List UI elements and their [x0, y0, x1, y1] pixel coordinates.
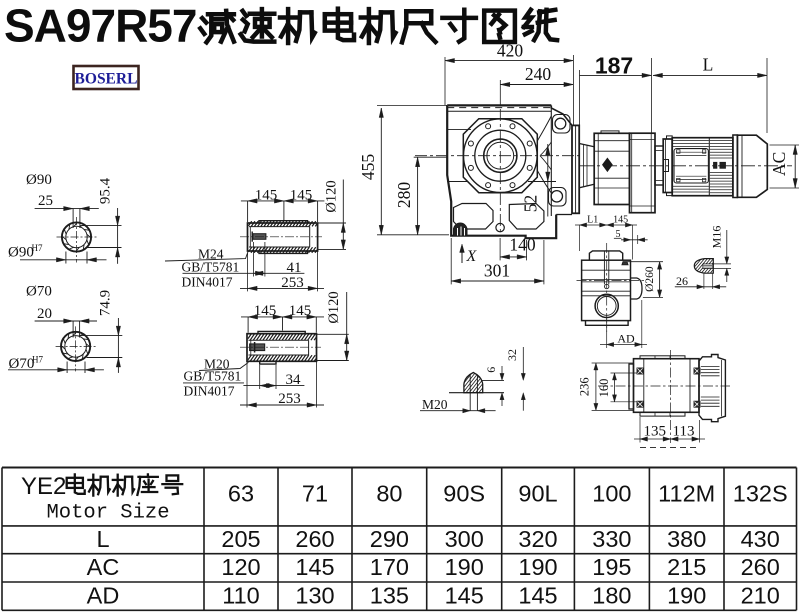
svg-text:63: 63 [228, 481, 254, 507]
svg-text:Ø120: Ø120 [326, 291, 342, 323]
svg-text:215: 215 [667, 554, 706, 580]
svg-text:95.4: 95.4 [98, 177, 114, 204]
svg-text:280: 280 [394, 182, 414, 209]
svg-text:330: 330 [592, 526, 631, 552]
svg-text:L1: L1 [587, 214, 598, 225]
svg-text:300: 300 [445, 526, 484, 552]
svg-text:32: 32 [505, 349, 519, 361]
svg-text:190: 190 [518, 554, 557, 580]
svg-text:320: 320 [518, 526, 557, 552]
svg-text:90L: 90L [518, 481, 557, 507]
svg-text:160: 160 [597, 379, 611, 398]
svg-text:420: 420 [497, 41, 524, 61]
svg-text:80: 80 [376, 481, 402, 507]
svg-text:195: 195 [592, 554, 631, 580]
svg-text:113: 113 [673, 423, 695, 439]
svg-text:455: 455 [358, 154, 378, 181]
svg-text:140: 140 [509, 235, 536, 255]
svg-text:6: 6 [484, 367, 498, 373]
svg-text:26: 26 [676, 274, 688, 288]
svg-text:M16: M16 [710, 226, 724, 249]
svg-text:AC: AC [87, 554, 120, 580]
svg-text:DIN4017: DIN4017 [182, 274, 233, 289]
svg-text:380: 380 [667, 526, 706, 552]
svg-text:253: 253 [278, 391, 301, 407]
svg-text:Ø70: Ø70 [26, 284, 52, 300]
svg-text:187: 187 [595, 53, 633, 79]
svg-text:170: 170 [370, 554, 409, 580]
svg-text:120: 120 [221, 554, 260, 580]
svg-text:AD: AD [617, 332, 635, 346]
svg-text:260: 260 [295, 526, 334, 552]
svg-text:190: 190 [667, 583, 706, 609]
svg-text:90S: 90S [443, 481, 485, 507]
svg-text:145: 145 [518, 583, 557, 609]
svg-text:X: X [466, 248, 478, 265]
svg-text:L: L [96, 526, 109, 552]
svg-text:430: 430 [741, 526, 780, 552]
svg-text:H7: H7 [32, 355, 43, 365]
svg-text:M20: M20 [422, 397, 448, 412]
svg-text:Ø90: Ø90 [26, 172, 52, 188]
svg-text:112M: 112M [658, 481, 715, 507]
svg-text:210: 210 [741, 583, 780, 609]
svg-text:240: 240 [525, 64, 552, 84]
svg-text:130: 130 [295, 583, 334, 609]
svg-text:135: 135 [370, 583, 409, 609]
svg-text:41: 41 [287, 260, 302, 276]
svg-text:H7: H7 [32, 243, 43, 253]
svg-text:BOSERL: BOSERL [75, 71, 138, 88]
svg-text:253: 253 [281, 275, 304, 291]
svg-text:Ø90: Ø90 [8, 245, 34, 261]
svg-text:Ø260: Ø260 [644, 266, 656, 292]
svg-text:301: 301 [484, 260, 510, 280]
svg-text:100: 100 [592, 481, 631, 507]
svg-text:L: L [703, 55, 714, 75]
svg-text:110: 110 [222, 583, 259, 609]
svg-text:52: 52 [521, 195, 541, 213]
svg-text:34: 34 [286, 372, 302, 388]
svg-text:236: 236 [578, 377, 592, 396]
svg-text:205: 205 [221, 526, 260, 552]
svg-text:Motor Size: Motor Size [46, 502, 169, 525]
svg-text:20: 20 [37, 306, 52, 322]
svg-text:AC: AC [769, 152, 789, 176]
svg-text:25: 25 [38, 193, 53, 209]
svg-text:145: 145 [445, 583, 484, 609]
svg-text:AD: AD [87, 583, 120, 609]
svg-text:190: 190 [445, 554, 484, 580]
svg-text:SA97R57: SA97R57 [4, 0, 196, 52]
svg-text:GB/T5781: GB/T5781 [182, 259, 240, 274]
svg-text:Ø120: Ø120 [323, 180, 339, 212]
svg-text:290: 290 [370, 526, 409, 552]
svg-text:145: 145 [295, 554, 334, 580]
svg-text:260: 260 [741, 554, 780, 580]
svg-text:YE2: YE2 [21, 473, 66, 500]
svg-text:DIN4017: DIN4017 [184, 383, 235, 398]
svg-text:132S: 132S [733, 481, 788, 507]
svg-text:GB/T5781: GB/T5781 [184, 369, 242, 384]
svg-text:74.9: 74.9 [98, 290, 114, 316]
svg-text:71: 71 [302, 481, 328, 507]
svg-text:180: 180 [592, 583, 631, 609]
